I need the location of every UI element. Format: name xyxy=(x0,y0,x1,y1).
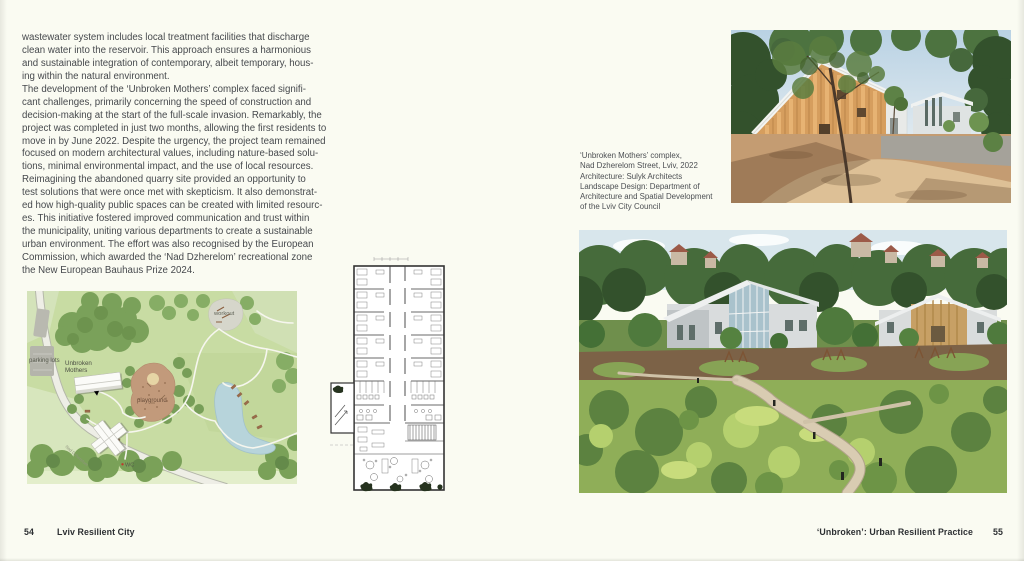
left-page-footer: 54 Lviv Resilient City xyxy=(24,527,135,537)
body-line: move in by June 2022. Despite the urgenc… xyxy=(22,136,298,149)
siteplan-label-playground: playground xyxy=(137,398,167,404)
entrance-annex xyxy=(331,383,354,433)
body-line: focused on modern architectural values, … xyxy=(22,148,298,161)
running-title-left: Lviv Resilient City xyxy=(57,527,135,537)
siteplan-label-building-1: Unbroken xyxy=(65,360,92,367)
dimension-line xyxy=(374,257,408,261)
right-bush xyxy=(983,132,1003,152)
body-line: decision-making at the start of the full… xyxy=(22,110,298,123)
wc-marker-icon xyxy=(121,463,123,465)
caption-line: of the Lviv City Council xyxy=(580,202,722,212)
photo-caption: ‘Unbroken Mothers’ complex, Nad Dzherelo… xyxy=(580,151,722,213)
body-line: tions, minimal environmental impact, and… xyxy=(22,161,298,174)
floor-plan-drawing xyxy=(330,255,450,498)
body-line: cant challenges, primarily concerning th… xyxy=(22,97,298,110)
body-text-column: wastewater system includes local treatme… xyxy=(22,32,298,278)
body-line: test solutions that were once met with s… xyxy=(22,187,298,200)
body-line: ed how high-quality public spaces can be… xyxy=(22,200,298,213)
siteplan-label-wc: WC xyxy=(125,463,134,469)
page-edge-right xyxy=(1017,0,1024,561)
siteplan-label-building-2: Mothers xyxy=(65,367,87,374)
body-line: Reimagining the abandoned quarry site pr… xyxy=(22,174,298,187)
caption-line: ‘Unbroken Mothers’ complex, xyxy=(580,151,722,161)
photo-unbroken-mothers-building xyxy=(731,30,1011,203)
body-line: the municipality, uniting various depart… xyxy=(22,226,298,239)
body-line: es. This initiative fostered improved co… xyxy=(22,213,298,226)
body-line: project was completed in just two months… xyxy=(22,123,298,136)
body-line: and sustainable integration of contempor… xyxy=(22,58,298,71)
body-line: Commission, which awarded the ‘Nad Dzher… xyxy=(22,252,298,265)
floorplan-outline xyxy=(354,266,444,490)
site-plan-illustration: parking lots Unbroken Mothers playground… xyxy=(27,291,297,484)
page-edge-left xyxy=(0,0,7,561)
book-spread: wastewater system includes local treatme… xyxy=(0,0,1024,561)
body-line: urban environment. The effort was also r… xyxy=(22,239,298,252)
caption-line: Architecture and Spatial Development xyxy=(580,192,722,202)
photo-park-landscape xyxy=(579,230,1007,493)
body-line: The development of the ‘Unbroken Mothers… xyxy=(22,84,298,97)
siteplan-label-parking: parking lots xyxy=(29,358,60,364)
page-number-left: 54 xyxy=(24,527,34,537)
body-line: the New European Bauhaus Prize 2024. xyxy=(22,265,298,278)
caption-line: Architecture: Sulyk Architects xyxy=(580,172,722,182)
caption-line: Nad Dzherelom Street, Lviv, 2022 xyxy=(580,161,722,171)
caption-line: Landscape Design: Department of xyxy=(580,182,722,192)
playground-area xyxy=(131,363,175,422)
right-page-footer: ‘Unbroken’: Urban Resilient Practice 55 xyxy=(817,527,1003,537)
body-line: ing within the natural environment. xyxy=(22,71,298,84)
ground xyxy=(731,134,1011,203)
siteplan-label-workout: workout xyxy=(213,311,235,317)
page-number-right: 55 xyxy=(993,527,1003,537)
body-line: wastewater system includes local treatme… xyxy=(22,32,298,45)
running-title-right: ‘Unbroken’: Urban Resilient Practice xyxy=(817,527,973,537)
body-line: clean water into the reservoir. This app… xyxy=(22,45,298,58)
